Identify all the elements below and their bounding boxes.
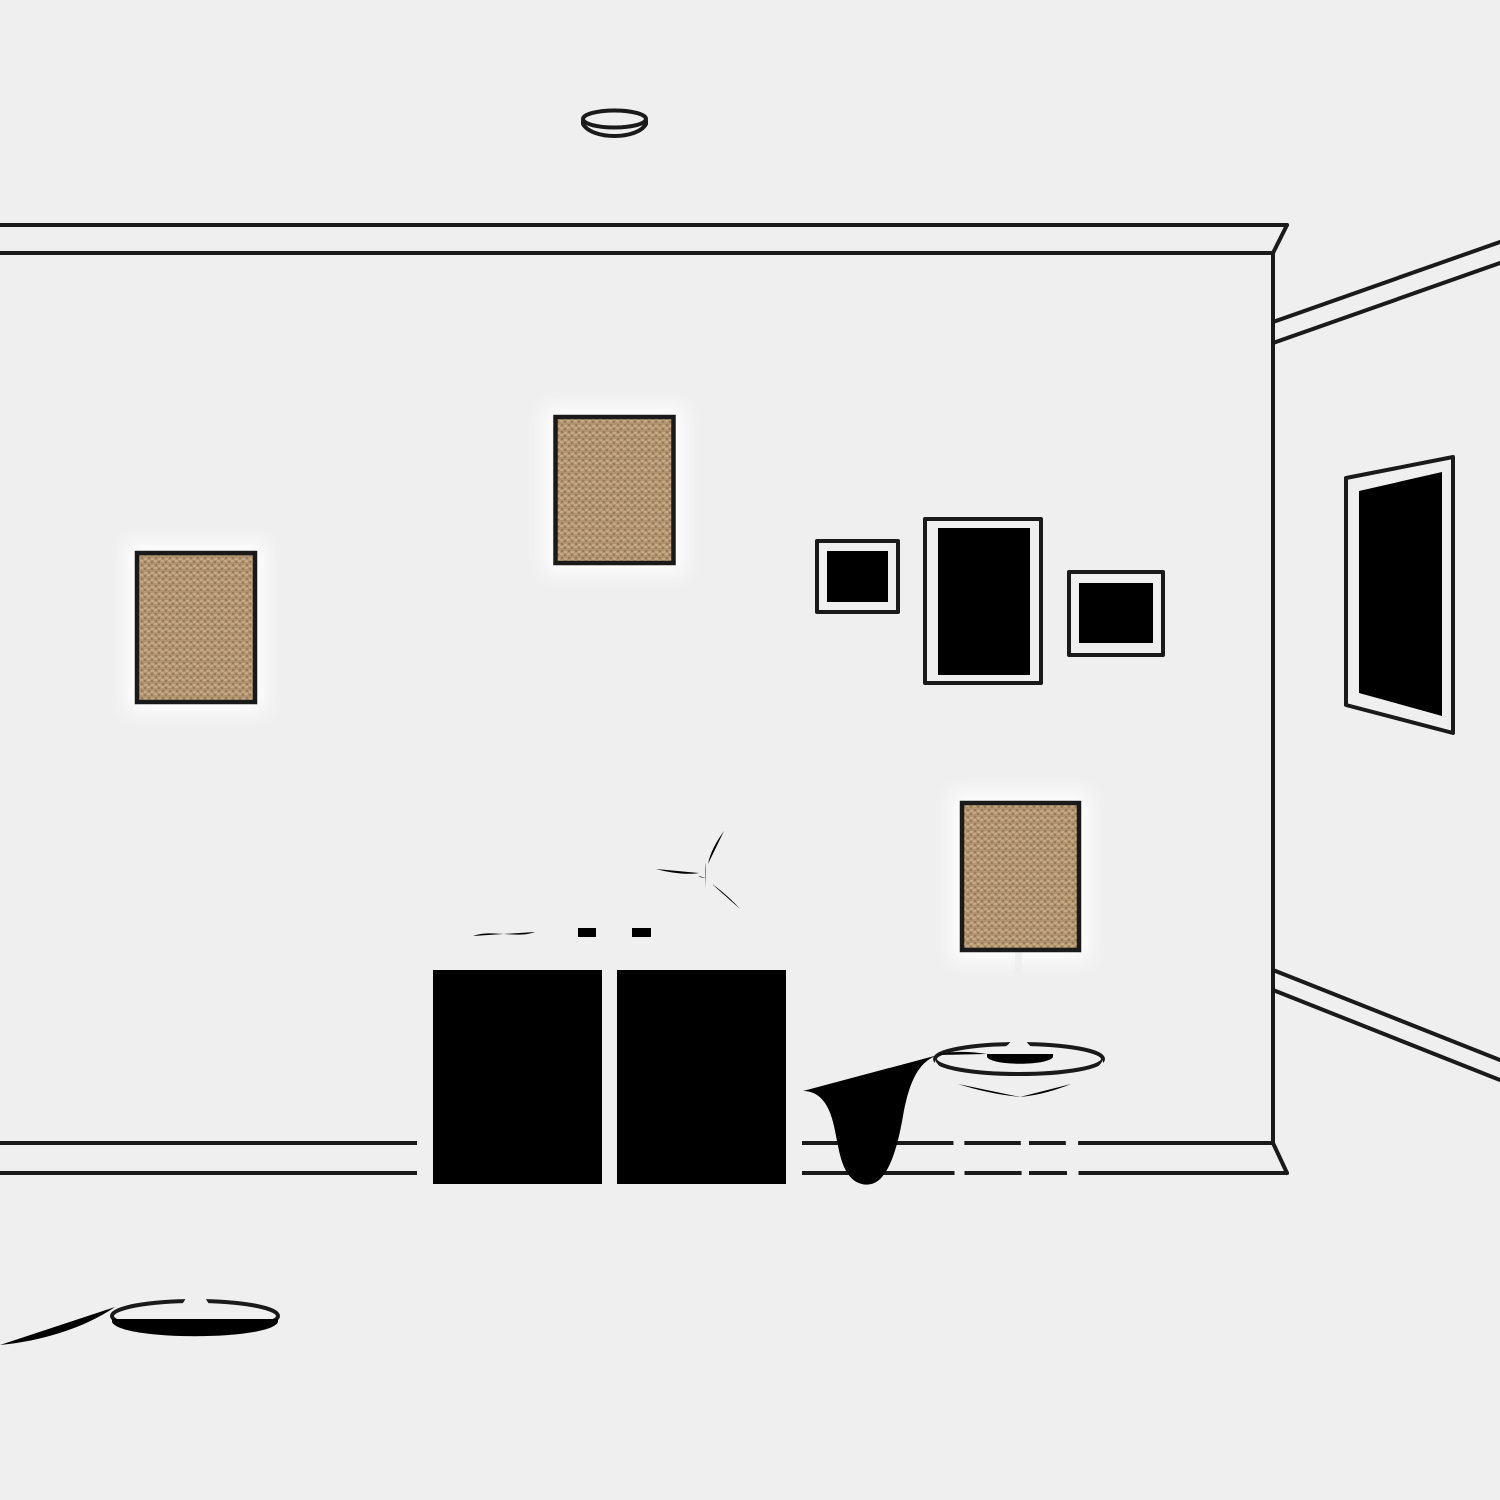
radio (569, 910, 658, 956)
floor-lamp-base-rim (112, 1319, 278, 1336)
illustration-canvas (0, 0, 1500, 1500)
frame-seascape (1069, 572, 1163, 655)
cabinet-left-door-knob (567, 1076, 580, 1089)
radio-left-button (578, 928, 596, 937)
reed-diffuser (472, 855, 536, 955)
frame-waves (817, 541, 898, 612)
floor-lamp (0, 553, 278, 1345)
side-molding-bottom-line (1273, 263, 1500, 343)
table-lamp-shade (962, 803, 1079, 950)
frame-seascape-sun (1088, 591, 1101, 604)
frame-mountain (925, 519, 1041, 683)
crown-molding (0, 225, 1287, 253)
wall-mirror (1346, 457, 1453, 733)
pendant-lamp-shade (556, 417, 674, 563)
cabinet-left-leg (467, 1200, 565, 1277)
side-molding-top-line (1273, 242, 1500, 322)
pendant-ceiling-canopy (583, 111, 646, 128)
floor-lamp-cord (0, 1307, 115, 1345)
crown-molding-end-cap (1273, 225, 1287, 253)
floor-lamp-stem-flare (174, 1280, 217, 1313)
floor-lamp-shade (137, 553, 255, 702)
side-wall-crown-molding (1273, 242, 1500, 343)
radio-bottom-box (580, 943, 648, 956)
radio-top-box (585, 910, 643, 924)
side-baseboard-bottom-line (1273, 990, 1500, 1080)
side-wall-baseboard (1273, 970, 1500, 1080)
side-baseboard-top-line (1273, 970, 1500, 1060)
frame-mountain-inner (938, 528, 1030, 675)
radio-right-button (632, 928, 651, 937)
living-room-illustration (0, 0, 1500, 1500)
plant-vase (650, 827, 744, 956)
mirror-inner-frame (1359, 472, 1442, 716)
power-cord (803, 1055, 938, 1185)
cabinet-right-leg (652, 1200, 750, 1277)
plant-leaf-left (650, 860, 704, 882)
pendant-lamp (556, 111, 674, 564)
frame-mountain-sun (963, 565, 985, 587)
side-table (935, 1044, 1103, 1274)
table-lamp-stem (1000, 950, 1036, 1050)
cabinet (417, 953, 802, 1277)
cabinet-right-door-knob (640, 1075, 653, 1088)
baseboard-end-cap (1273, 1143, 1287, 1173)
side-table-back-leg (1019, 1075, 1029, 1227)
